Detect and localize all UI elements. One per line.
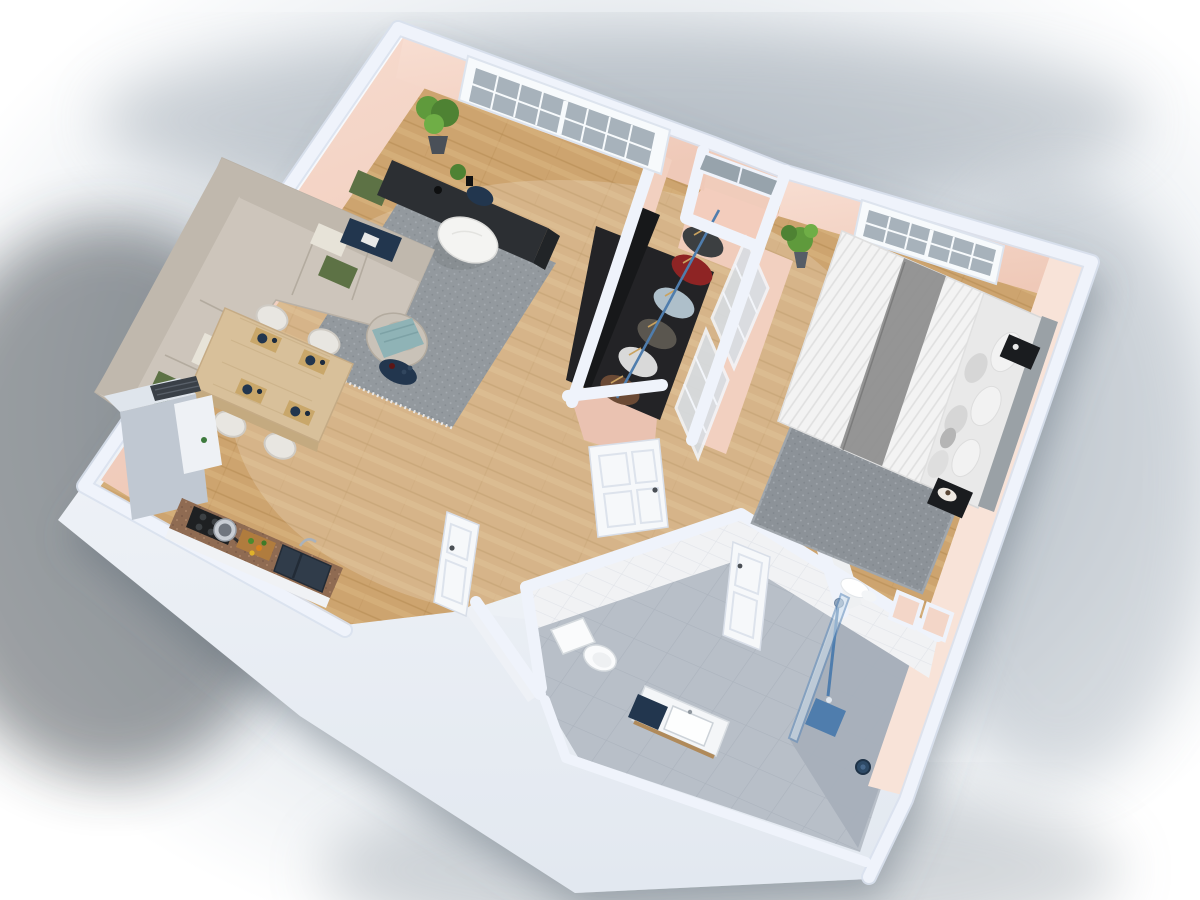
vanity-faucet: [688, 710, 692, 714]
vegetable-yellow: [249, 550, 254, 555]
front-door-handle: [449, 545, 454, 550]
pan-inside: [219, 524, 232, 537]
bathroom-door-handle: [738, 564, 743, 569]
floorplan-svg: [0, 0, 1200, 900]
console-vase: [466, 176, 473, 186]
burner-1: [200, 514, 207, 521]
shower-drain-center: [860, 764, 865, 769]
vegetable-orange: [256, 545, 262, 551]
shower-handle: [826, 697, 832, 703]
burner-3: [196, 524, 203, 531]
vegetable-green: [248, 538, 254, 544]
glass-1: [402, 370, 407, 375]
bedroom-plant-foliage-2: [781, 225, 797, 241]
wine-bottle: [389, 363, 395, 369]
console-plant-leaves: [450, 164, 466, 180]
bedroom-plant-foliage-3: [804, 224, 818, 238]
fridge-bottle: [201, 437, 207, 443]
glass-2: [408, 366, 413, 371]
floorplan-render: [0, 0, 1200, 900]
console-bowl: [434, 186, 442, 194]
plant-foliage-3: [424, 114, 444, 134]
vegetable-leaf: [261, 540, 266, 545]
bedroom-door-handle: [652, 487, 657, 492]
bedroom-door: [589, 439, 668, 537]
